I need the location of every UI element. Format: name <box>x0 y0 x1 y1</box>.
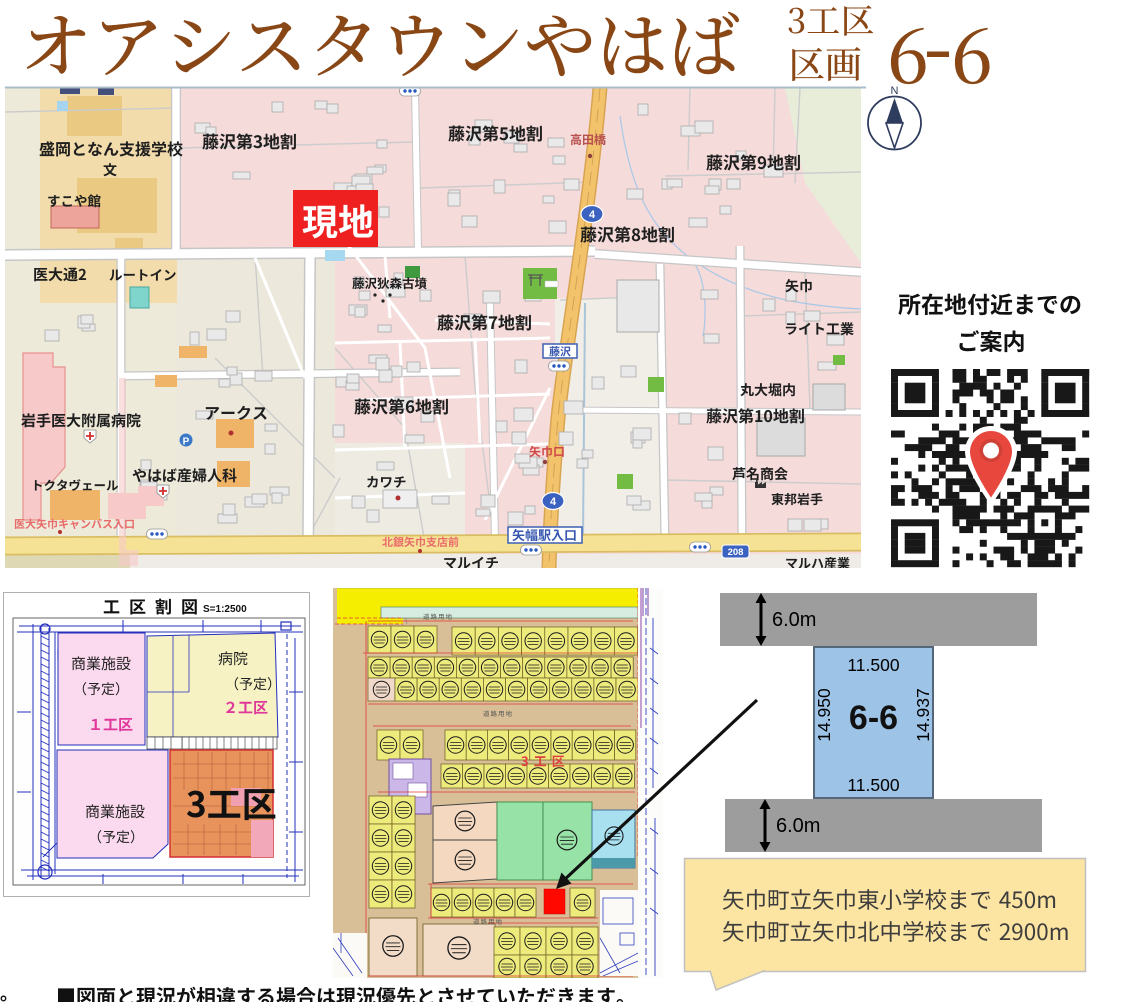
svg-text:11.500: 11.500 <box>847 655 899 675</box>
svg-text:4: 4 <box>550 496 557 508</box>
svg-text:6-6: 6-6 <box>849 699 898 737</box>
svg-text:N: N <box>891 85 899 97</box>
svg-text:S=1:2500: S=1:2500 <box>203 604 247 615</box>
svg-text:14.937: 14.937 <box>913 688 933 742</box>
svg-text:14.950: 14.950 <box>814 688 834 742</box>
svg-text:11.500: 11.500 <box>847 775 899 795</box>
svg-text:4: 4 <box>589 209 596 221</box>
svg-text:P: P <box>183 437 190 448</box>
svg-text:6.0m: 6.0m <box>772 609 816 631</box>
svg-text:208: 208 <box>728 547 744 558</box>
svg-text:6.0m: 6.0m <box>776 815 820 837</box>
